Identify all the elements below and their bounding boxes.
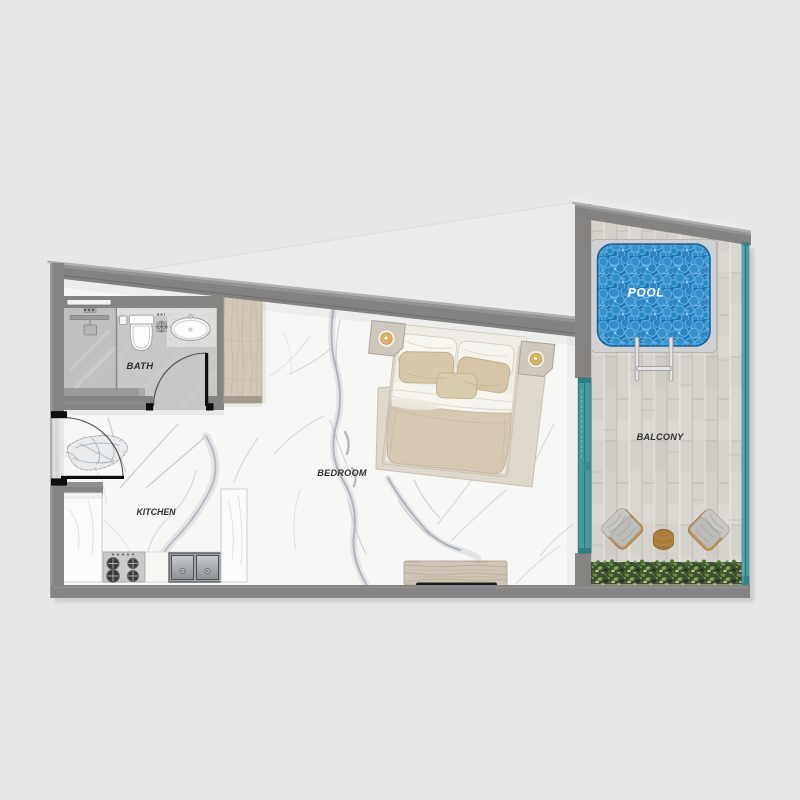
svg-text:BATH: BATH	[127, 361, 155, 372]
svg-text:BEDROOM: BEDROOM	[317, 468, 367, 478]
svg-text:POOL: POOL	[628, 285, 664, 299]
svg-text:KITCHEN: KITCHEN	[136, 507, 176, 517]
svg-text:BALCONY: BALCONY	[637, 432, 685, 442]
